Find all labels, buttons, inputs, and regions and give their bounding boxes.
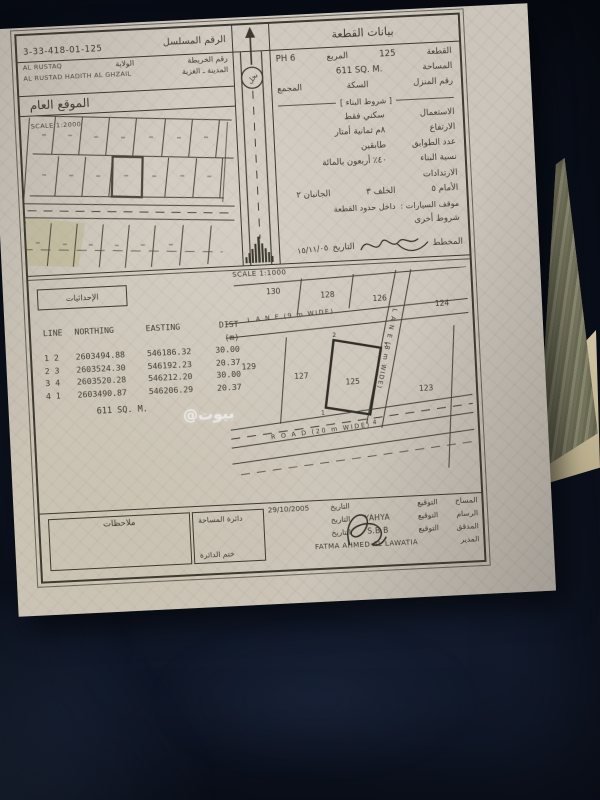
site-plan: 130 128 126 124 129 127 125 123 2 3 1 4 bbox=[223, 267, 476, 499]
serial-value: 3-33-418-01-125 bbox=[23, 44, 103, 58]
planner-date-value: ١٥/١١/٠٥ bbox=[297, 243, 329, 256]
floors-value: طابقين bbox=[361, 139, 387, 155]
krooki-document: الرقم المسلسل 3-33-418-01-125 بيانات الق… bbox=[14, 13, 486, 584]
checker-role: المدقق bbox=[439, 521, 479, 532]
corner-2: 2 bbox=[332, 332, 336, 339]
area-value: 611 SQ. M. bbox=[336, 63, 383, 80]
survey-dept-label: دائرة المساحة bbox=[198, 514, 243, 525]
tower-icon bbox=[244, 236, 273, 263]
other-terms-label: شروط أخرى bbox=[414, 211, 460, 228]
setback-back: الخلف ٣ bbox=[366, 184, 396, 201]
plot-value: 125 bbox=[379, 47, 396, 63]
plot-125: 125 bbox=[345, 377, 360, 387]
setbacks-label: الارتدادات bbox=[423, 165, 458, 182]
road-label: R O A D (20 m WIDE) bbox=[271, 421, 372, 441]
corner-4: 4 bbox=[372, 419, 376, 426]
document-paper: الرقم المسلسل 3-33-418-01-125 بيانات الق… bbox=[0, 3, 556, 617]
survey-dept-box: دائرة المساحة ختم الدائرة bbox=[192, 509, 266, 564]
plot-124: 124 bbox=[435, 298, 450, 308]
serial-label: الرقم المسلسل bbox=[163, 33, 226, 47]
general-location-map: SCALE 1:2000 bbox=[20, 106, 243, 277]
parking-value: داخل حدود القطعة bbox=[333, 199, 396, 217]
draftsman-date bbox=[269, 523, 321, 526]
director-role: المدير bbox=[439, 534, 479, 545]
surveyor-date: 29/10/2005 bbox=[268, 503, 320, 515]
draftsman-role: الرسام bbox=[438, 508, 478, 519]
area-note: 611 SQ. M. bbox=[97, 404, 149, 416]
square-label: المربع bbox=[326, 49, 348, 65]
plot-label: القطعة bbox=[426, 44, 452, 60]
setback-front: الأمام ٥ bbox=[431, 181, 459, 197]
surveyor-role: المساح bbox=[437, 495, 477, 506]
ratio-value: ٤٠٪ أربعون بالمائة bbox=[322, 154, 387, 172]
checker-date bbox=[269, 536, 321, 539]
square-value: PH 6 bbox=[275, 52, 295, 68]
plot-130: 130 bbox=[266, 287, 281, 297]
plot-123: 123 bbox=[419, 383, 434, 393]
plot-info-panel: القطعة 125 المربع PH 6 المساحة 611 SQ. M… bbox=[269, 42, 467, 264]
dept-stamp-label: ختم الدائرة bbox=[200, 549, 235, 560]
north-arrow-icon bbox=[245, 27, 256, 38]
location-map-drawing bbox=[20, 107, 238, 273]
corner-1: 1 bbox=[321, 410, 325, 417]
lane-h-label: L A N E (9 m WIDE) bbox=[247, 308, 335, 324]
fabric-fold bbox=[150, 620, 480, 780]
notes-box: ملاحظات bbox=[48, 512, 192, 571]
plot-128: 128 bbox=[320, 290, 335, 300]
plot-129: 129 bbox=[242, 362, 257, 372]
bayut-watermark: @بيوت bbox=[183, 404, 235, 424]
planner-date-label: التاريخ bbox=[332, 242, 355, 253]
town-label: المدينة ـ الغزية bbox=[182, 65, 229, 76]
photo-scene: الرقم المسلسل 3-33-418-01-125 بيانات الق… bbox=[0, 0, 600, 800]
wilaya-label: الولاية bbox=[115, 58, 134, 68]
setback-sides: الجانبان ٢ bbox=[296, 187, 331, 204]
coordinates-table: LINE NORTHING EASTING DIST (m) 1 2 26034… bbox=[43, 318, 242, 402]
planner-label: المخطط bbox=[432, 237, 463, 248]
site-plan-drawing: 130 128 126 124 129 127 125 123 2 3 1 4 bbox=[223, 267, 476, 499]
checker-signature-scribble bbox=[340, 507, 388, 551]
subject-plot-location bbox=[112, 157, 143, 198]
street-label: السكة bbox=[346, 78, 369, 94]
plot-127: 127 bbox=[294, 371, 309, 381]
house-no-label: رقم المنزل bbox=[413, 74, 454, 91]
complex-label: المجمع bbox=[277, 82, 303, 98]
plot-126: 126 bbox=[372, 293, 387, 303]
coords-box: الإحداثيات bbox=[37, 285, 128, 310]
wilaya-value-en: AL RUSTAQ bbox=[23, 62, 63, 73]
planner-signature bbox=[358, 233, 429, 256]
